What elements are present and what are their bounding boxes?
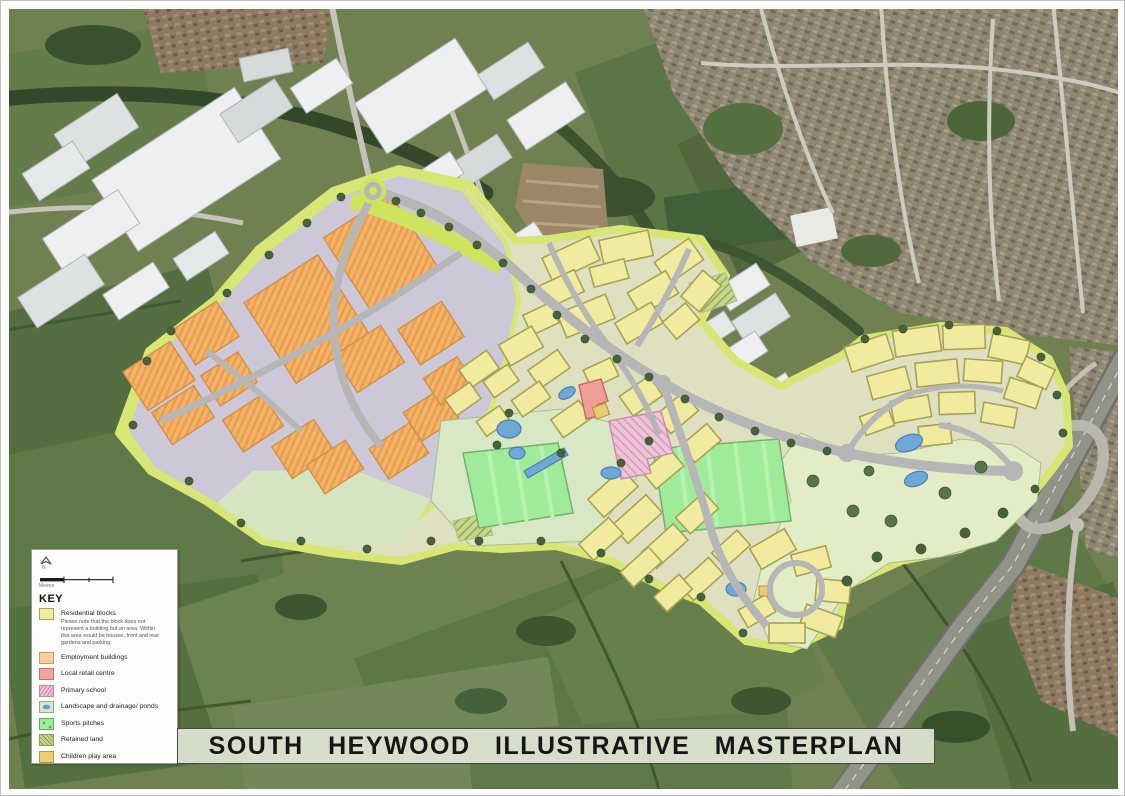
legend-swatch-landscape	[39, 701, 54, 713]
legend-swatch-retail	[39, 668, 54, 680]
legend-item-employment: Employment buildings	[39, 652, 171, 664]
scale-label: Metres	[39, 584, 171, 589]
legend-item-label: Landscape and drainage/ ponds	[61, 701, 158, 711]
legend-item-label: Retained land	[61, 734, 103, 744]
legend-swatch-play	[39, 751, 54, 763]
legend-item-landscape: Landscape and drainage/ ponds	[39, 701, 171, 713]
legend-item-sports: Sports pitches	[39, 718, 171, 730]
legend-swatch-retained	[39, 734, 54, 746]
scale-bar: Metres	[39, 575, 171, 589]
legend-item-residential: Residential blocksPlease note that the b…	[39, 608, 171, 647]
masterplan-title: SOUTH HEYWOOD ILLUSTRATIVE MASTERPLAN	[209, 732, 904, 761]
legend-item-note: Please note that the block does not repr…	[61, 619, 163, 647]
legend-item-label: Local retail centre	[61, 668, 115, 678]
legend-swatch-employment	[39, 652, 54, 664]
north-label: N	[42, 566, 171, 571]
legend-item-label: Primary school	[61, 685, 106, 695]
legend-item-school: Primary school	[39, 685, 171, 697]
title-bar: SOUTH HEYWOOD ILLUSTRATIVE MASTERPLAN	[177, 728, 935, 764]
legend-item-play: Children play area	[39, 751, 171, 763]
legend-swatch-school	[39, 685, 54, 697]
legend-item-retained: Retained land	[39, 734, 171, 746]
legend-panel: N Metres KEY Residential blocksPlease no…	[31, 549, 178, 764]
north-arrow: N	[39, 555, 171, 571]
legend-item-retail: Local retail centre	[39, 668, 171, 680]
legend-items: Residential blocksPlease note that the b…	[39, 608, 171, 763]
legend-item-label: Sports pitches	[61, 718, 104, 728]
legend-item-label: Employment buildings	[61, 652, 128, 662]
masterplan-sheet: N Metres KEY Residential blocksPlease no…	[0, 0, 1125, 796]
legend-title: KEY	[39, 593, 171, 605]
legend-item-label: Residential blocks	[61, 608, 163, 618]
legend-swatch-sports	[39, 718, 54, 730]
legend-swatch-residential	[39, 608, 54, 620]
legend-item-label: Children play area	[61, 751, 116, 761]
